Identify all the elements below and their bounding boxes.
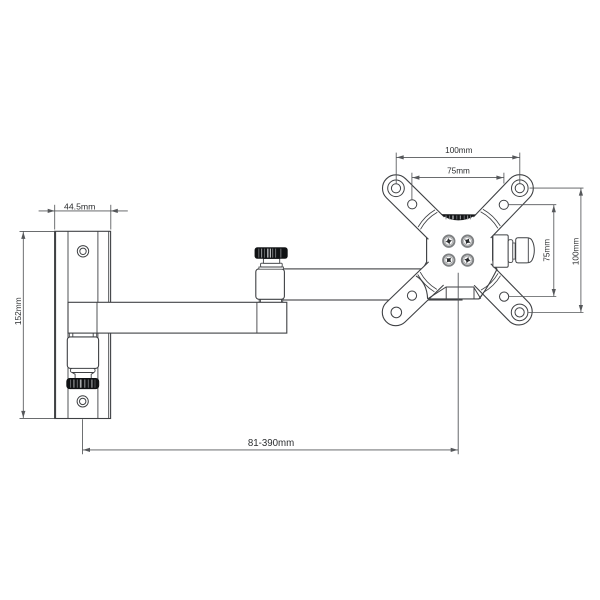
svg-text:100mm: 100mm <box>571 238 580 265</box>
svg-text:75mm: 75mm <box>447 167 470 176</box>
svg-text:75mm: 75mm <box>542 239 551 262</box>
svg-text:81-390mm: 81-390mm <box>248 438 294 449</box>
svg-text:44.5mm: 44.5mm <box>64 201 95 211</box>
svg-text:100mm: 100mm <box>445 146 472 155</box>
svg-text:152mm: 152mm <box>13 297 23 325</box>
